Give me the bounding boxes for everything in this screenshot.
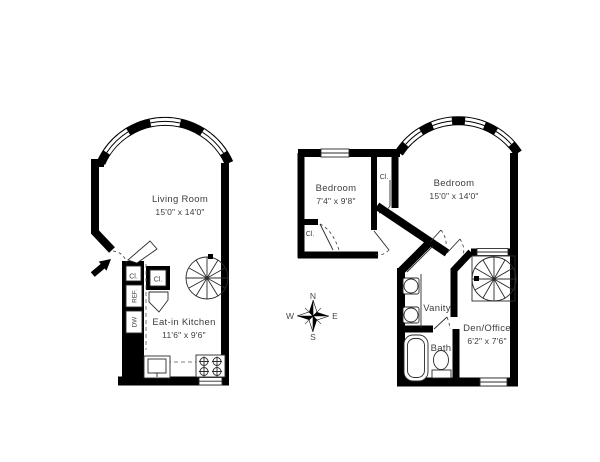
window — [480, 378, 507, 386]
stove — [196, 355, 225, 377]
small-bedroom: Bedroom 7'4" x 9'8" — [316, 183, 357, 206]
refrigerator: REF. — [126, 285, 142, 307]
large-bedroom-door — [447, 239, 460, 253]
vanity-diagonal-wall — [401, 242, 430, 271]
bedroom-large-dims: 15'0" x 14'0" — [429, 191, 478, 201]
dishwasher: DW — [126, 311, 142, 333]
toilet — [432, 351, 451, 379]
bath-door — [434, 317, 447, 329]
closet-small-label: Cl. — [306, 231, 315, 238]
bedroom-small-label: Bedroom — [316, 183, 357, 194]
refrigerator-label: REF. — [132, 289, 139, 303]
closet-a-label: Cl. — [129, 274, 138, 281]
two-floor-plan-diagram: REF. DW Cl. Cl. — [0, 0, 600, 462]
den-label: Den/Office — [463, 323, 511, 334]
entry-arrow-icon — [91, 259, 111, 277]
bath-label: Bath — [431, 343, 452, 354]
bathtub — [404, 335, 428, 381]
small-bedroom-door — [374, 231, 389, 250]
bedroom-diagonal-wall — [377, 206, 447, 253]
second-floor-plan: Cl. Cl. — [298, 121, 518, 386]
closet-mid-label: Cl. — [380, 174, 389, 181]
living-room-dims: 15'0" x 14'0" — [155, 207, 204, 217]
hall-door-swing — [441, 230, 446, 247]
window — [477, 249, 508, 256]
kitchen-label: Eat-in Kitchen — [152, 317, 215, 328]
compass-east-label: E — [332, 311, 338, 321]
closet-b: Cl. — [149, 266, 168, 312]
hall-door — [430, 230, 441, 242]
den-dims: 6'2" x 7'6" — [467, 336, 506, 346]
kitchen-dims: 11'6" x 9'6" — [162, 330, 206, 340]
compass-north-label: N — [310, 291, 316, 301]
first-floor-plan: REF. DW Cl. Cl. — [91, 121, 229, 385]
spiral-staircase-second-floor — [472, 256, 516, 301]
closet-b-label: Cl. — [154, 277, 163, 284]
den-office: Den/Office 6'2" x 7'6" — [463, 323, 511, 346]
living-room: Living Room 15'0" x 14'0" — [152, 194, 208, 217]
large-bedroom: Bedroom 15'0" x 14'0" — [429, 178, 478, 201]
compass-west-label: W — [286, 311, 294, 321]
bay-window-arch — [399, 121, 518, 153]
closet-b-door — [149, 292, 168, 312]
eat-in-kitchen: Eat-in Kitchen 11'6" x 9'6" — [152, 317, 215, 340]
compass-rose: N E S W — [286, 291, 338, 342]
bay-window-arch — [101, 121, 229, 163]
middle-closet: Cl. — [374, 153, 400, 213]
living-room-label: Living Room — [152, 194, 208, 205]
bedroom-large-label: Bedroom — [434, 178, 475, 189]
floor-plan-image: REF. DW Cl. Cl. — [0, 0, 600, 462]
left-wall — [95, 163, 112, 250]
closet-a-door — [128, 241, 157, 263]
compass-south-label: S — [310, 332, 316, 342]
kitchen-sink — [144, 356, 170, 378]
vanity-label: Vanity — [423, 303, 451, 314]
bath-door-swing — [447, 317, 450, 329]
bedroom-small-dims: 7'4" x 9'8" — [316, 196, 355, 206]
window — [199, 378, 222, 386]
dishwasher-label: DW — [132, 317, 139, 328]
den-upper-wall — [454, 252, 471, 317]
window — [321, 149, 349, 157]
